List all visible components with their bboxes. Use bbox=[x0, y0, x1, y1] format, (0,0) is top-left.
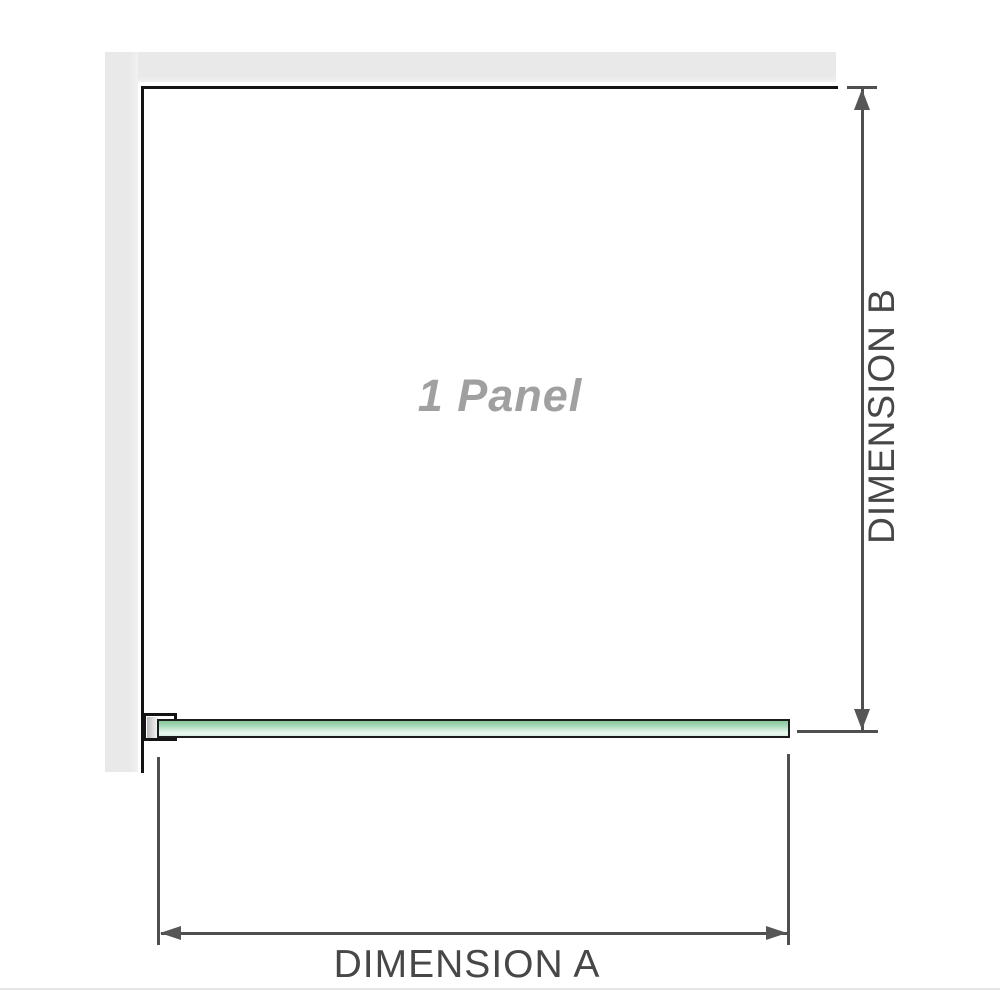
dimension-a-line bbox=[161, 932, 787, 935]
glass-panel-bar bbox=[157, 719, 790, 738]
arrow-left-icon bbox=[160, 926, 181, 940]
arrow-down-icon bbox=[854, 709, 870, 730]
wall-left bbox=[105, 52, 138, 772]
arrow-right-icon bbox=[766, 926, 787, 940]
panel-count-label: 1 Panel bbox=[330, 368, 670, 424]
dimension-b-label: DIMENSION B bbox=[862, 266, 902, 566]
arrow-up-icon bbox=[854, 89, 870, 110]
panel-outline-left-edge bbox=[141, 86, 144, 773]
wall-top bbox=[105, 52, 836, 82]
bracket-slot-shading bbox=[147, 717, 158, 738]
dimension-b-bottom-cap bbox=[797, 730, 878, 733]
shower-panel-diagram: 1 Panel DIMENSION B DIMENSION A bbox=[0, 0, 1000, 1000]
bottom-separator-line bbox=[0, 988, 1000, 990]
dimension-a-label: DIMENSION A bbox=[297, 944, 637, 986]
panel-outline-top-edge bbox=[141, 86, 838, 89]
dimension-a-right-extension bbox=[787, 754, 790, 945]
dimension-a-left-extension bbox=[157, 757, 160, 945]
